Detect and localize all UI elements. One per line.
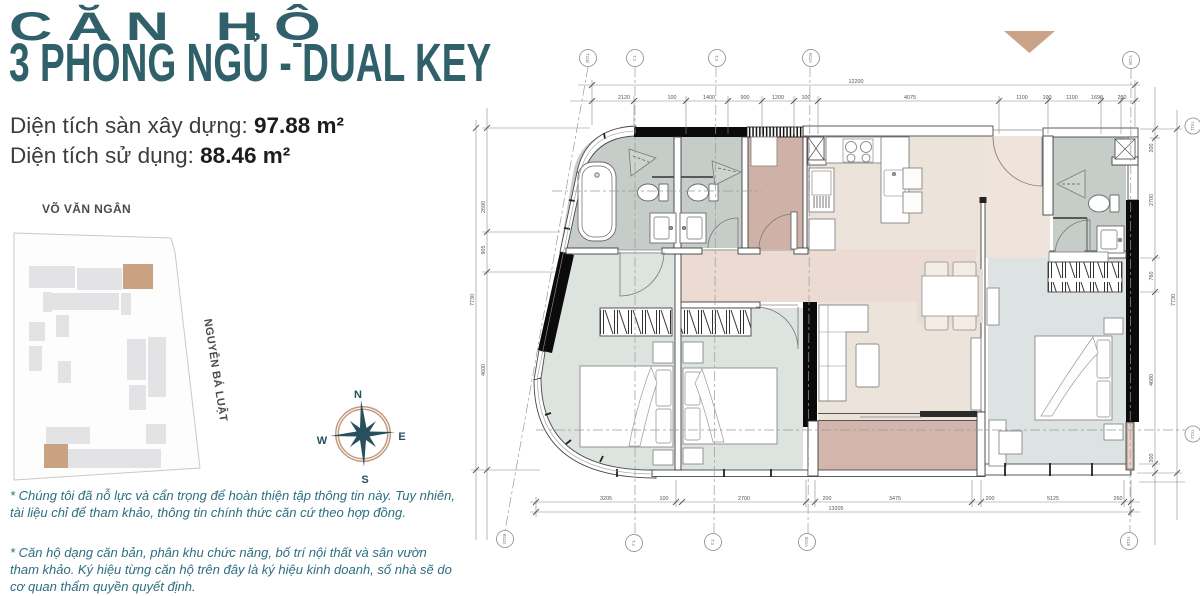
svg-text:100: 100 — [668, 95, 677, 101]
svg-text:S: S — [361, 474, 368, 486]
svg-text:Y11B: Y11B — [1128, 55, 1133, 65]
svg-text:2120: 2120 — [618, 95, 630, 101]
svg-text:260: 260 — [1114, 496, 1123, 502]
svg-text:100: 100 — [802, 95, 811, 101]
svg-text:760: 760 — [1149, 272, 1155, 281]
svg-text:4600: 4600 — [481, 364, 487, 376]
svg-text:2700: 2700 — [738, 496, 750, 502]
svg-text:1400: 1400 — [703, 95, 715, 101]
svg-text:B11A: B11A — [808, 53, 813, 63]
svg-text:3205: 3205 — [600, 496, 612, 502]
svg-text:7730: 7730 — [470, 294, 476, 306]
svg-text:N: N — [354, 389, 362, 401]
svg-text:1690: 1690 — [1091, 95, 1103, 101]
svg-text:Y418: Y418 — [1126, 536, 1131, 546]
svg-text:200: 200 — [823, 496, 832, 502]
svg-text:200: 200 — [986, 496, 995, 502]
svg-text:E: E — [398, 431, 405, 443]
svg-text:200: 200 — [1149, 454, 1155, 463]
svg-text:100: 100 — [660, 496, 669, 502]
svg-text:B11A: B11A — [804, 537, 809, 547]
svg-text:T.3: T.3 — [710, 539, 715, 545]
svg-text:1100: 1100 — [1016, 95, 1028, 101]
svg-text:T11B: T11B — [585, 53, 590, 63]
svg-text:230: 230 — [1118, 95, 1127, 101]
svg-text:W: W — [317, 435, 328, 447]
svg-text:7730: 7730 — [1171, 294, 1177, 306]
svg-text:7X14: 7X14 — [1190, 429, 1195, 439]
svg-text:200: 200 — [1149, 144, 1155, 153]
svg-text:7X11: 7X11 — [1190, 121, 1195, 131]
svg-text:12200: 12200 — [849, 79, 864, 85]
svg-text:B11D: B11D — [502, 534, 507, 544]
svg-text:1200: 1200 — [772, 95, 784, 101]
svg-text:4680: 4680 — [1149, 374, 1155, 386]
svg-text:905: 905 — [481, 246, 487, 255]
svg-text:5125: 5125 — [1047, 496, 1059, 502]
svg-text:3475: 3475 — [889, 496, 901, 502]
svg-text:T.3: T.3 — [714, 55, 719, 61]
svg-text:100: 100 — [1043, 95, 1052, 101]
svg-text:4075: 4075 — [904, 95, 916, 101]
svg-text:2690: 2690 — [481, 201, 487, 213]
svg-text:T.4: T.4 — [632, 55, 637, 61]
svg-text:1100: 1100 — [1066, 95, 1078, 101]
svg-text:2700: 2700 — [1149, 194, 1155, 206]
svg-text:900: 900 — [741, 95, 750, 101]
svg-text:T.4: T.4 — [631, 540, 636, 546]
svg-text:13205: 13205 — [829, 506, 844, 512]
